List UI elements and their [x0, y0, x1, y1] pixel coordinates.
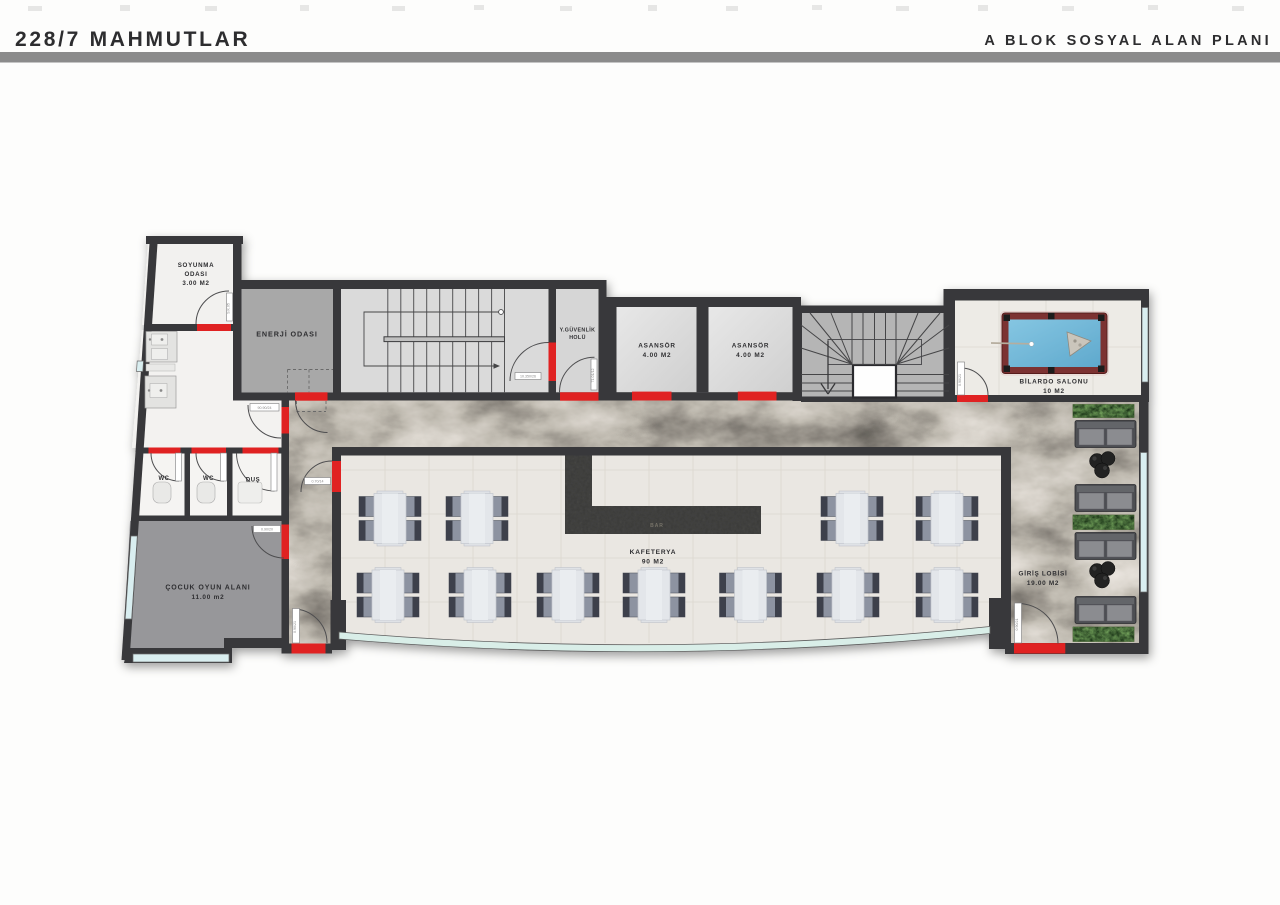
svg-text:0.90/21: 0.90/21 [293, 621, 297, 633]
svg-text:BAR: BAR [650, 523, 664, 529]
svg-text:0.90/21: 0.90/21 [1015, 619, 1019, 631]
svg-text:4.00 M2: 4.00 M2 [643, 352, 672, 359]
svg-text:0.90/20: 0.90/20 [261, 528, 273, 532]
svg-text:A BLOK SOSYAL ALAN PLANI: A BLOK SOSYAL ALAN PLANI [984, 33, 1272, 49]
svg-text:ENERJİ ODASI: ENERJİ ODASI [256, 330, 318, 339]
svg-text:10 M2: 10 M2 [1043, 388, 1065, 395]
svg-text:90.90/24: 90.90/24 [258, 406, 272, 410]
svg-text:ASANSÖR: ASANSÖR [732, 341, 770, 350]
svg-text:WC: WC [159, 476, 170, 482]
svg-text:10.350/26: 10.350/26 [520, 375, 536, 379]
svg-text:HOLÜ: HOLÜ [569, 334, 586, 341]
svg-text:KAFETERYA: KAFETERYA [630, 549, 677, 556]
svg-text:4.00 M2: 4.00 M2 [736, 352, 765, 359]
svg-text:BİLARDO SALONU: BİLARDO SALONU [1019, 377, 1088, 386]
svg-text:Y.GÜVENLİK: Y.GÜVENLİK [560, 327, 596, 334]
svg-text:90 M2: 90 M2 [642, 559, 664, 566]
svg-text:DUŞ: DUŞ [246, 478, 260, 484]
svg-text:S.K.05: S.K.05 [227, 303, 231, 314]
svg-text:GİRİŞ LOBİSİ: GİRİŞ LOBİSİ [1019, 569, 1068, 578]
svg-text:0.90/21: 0.90/21 [958, 374, 962, 386]
svg-text:WC: WC [203, 476, 214, 482]
svg-text:ASANSÖR: ASANSÖR [638, 341, 676, 350]
svg-text:71.01/12: 71.01/12 [591, 369, 595, 383]
svg-text:ODASI: ODASI [184, 271, 207, 278]
svg-text:11.00 m2: 11.00 m2 [191, 594, 224, 601]
svg-text:0.70/14: 0.70/14 [312, 480, 324, 484]
svg-text:3.00 M2: 3.00 M2 [182, 280, 209, 287]
svg-text:ÇOCUK OYUN ALANI: ÇOCUK OYUN ALANI [165, 585, 250, 592]
svg-text:SOYUNMA: SOYUNMA [178, 262, 215, 269]
svg-text:228/7 MAHMUTLAR: 228/7 MAHMUTLAR [15, 28, 250, 51]
svg-text:19.00 M2: 19.00 M2 [1027, 580, 1059, 587]
